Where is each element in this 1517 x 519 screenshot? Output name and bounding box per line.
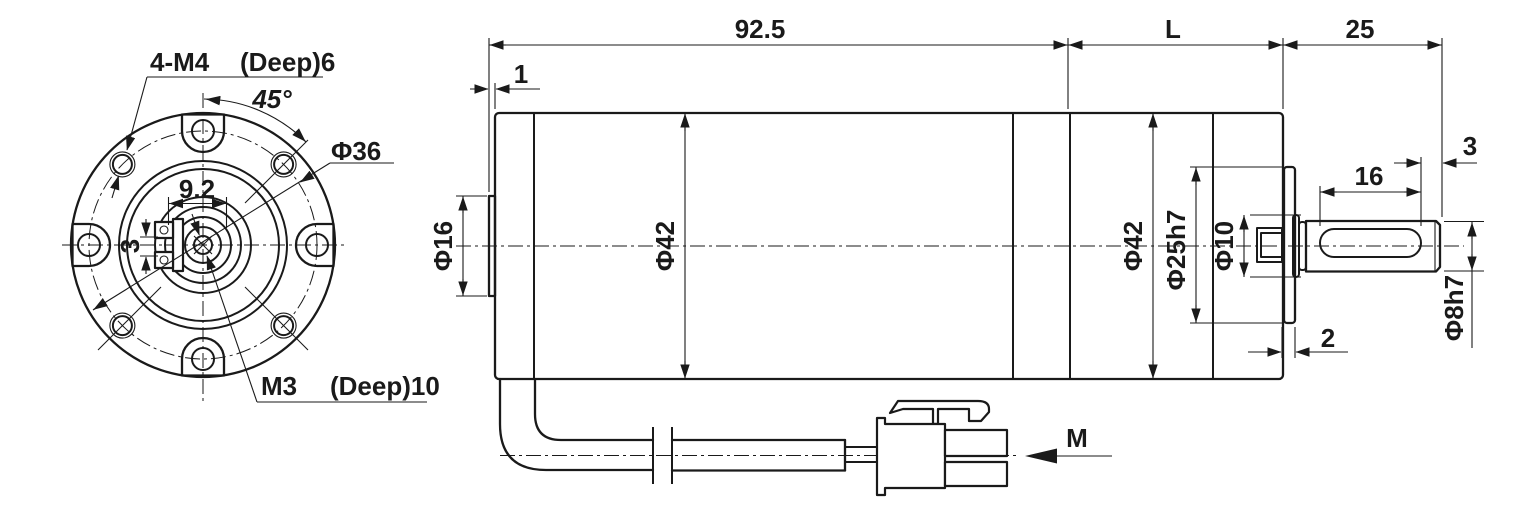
motor-cable [500,379,1007,495]
dim-gearhead-length: L [1068,14,1283,109]
callout-m3-text: M3 [261,371,297,401]
dim-text-2: 2 [1321,323,1335,353]
shaft-keyway [1320,229,1421,257]
dim-motor-dia: Φ42 [650,113,685,379]
dim-text-16: 16 [1355,161,1384,191]
front-view: 9.2 3 45° 4-M4 (Deep)6 Φ36 [62,47,440,403]
dim-pilot-height: 2 [1248,323,1348,358]
callout-m3-depth: (Deep)10 [330,371,440,401]
dim-motor-length: 92.5 [489,14,1068,192]
dim-gearhead-dia: Φ42 [1118,113,1153,379]
m-arrowhead [1025,449,1057,464]
dim-text-25: 25 [1346,14,1375,44]
side-view: M 92.5 1 L [428,14,1484,495]
connector-latch [890,401,989,424]
dim-key-length: 16 [1320,161,1421,226]
dim-text-92-5: 92.5 [735,14,786,44]
callout-phi36-text: Φ36 [331,136,381,166]
dim-text-3-side: 3 [1463,131,1477,161]
drawing-page: 9.2 3 45° 4-M4 (Deep)6 Φ36 [0,0,1517,519]
connector-pin-top [945,430,1007,456]
connector-body [877,418,945,495]
dim-text-phi16: Φ16 [428,221,458,271]
dim-text-9-2: 9.2 [179,174,215,204]
dim-rear-boss-dia: Φ16 [428,196,487,296]
dim-text-phi25h7: Φ25h7 [1161,210,1191,291]
connector-pin-bottom [945,462,1007,486]
dim-text-phi42-a: Φ42 [650,221,680,271]
dim-text-phi42-b: Φ42 [1118,221,1148,271]
dim-text-1: 1 [514,59,528,89]
motor-technical-drawing: 9.2 3 45° 4-M4 (Deep)6 Φ36 [0,0,1517,519]
dim-text-45deg: 45° [251,84,292,114]
dim-text-l: L [1165,14,1181,44]
dim-text-phi10: Φ10 [1209,221,1239,271]
dim-shaft-dia: Φ8h7 [1439,222,1484,349]
wire-m-callout: M [1025,423,1112,464]
dim-shaft-tip: 3 [1394,131,1477,226]
dim-text-m: M [1066,423,1088,453]
dim-text-3-front: 3 [115,239,145,253]
callout-4m4-depth: (Deep)6 [240,47,335,77]
dim-text-phi8h7: Φ8h7 [1439,275,1469,341]
dim-boss-step: 1 [470,59,540,109]
callout-4m4-text: 4-M4 [150,47,210,77]
